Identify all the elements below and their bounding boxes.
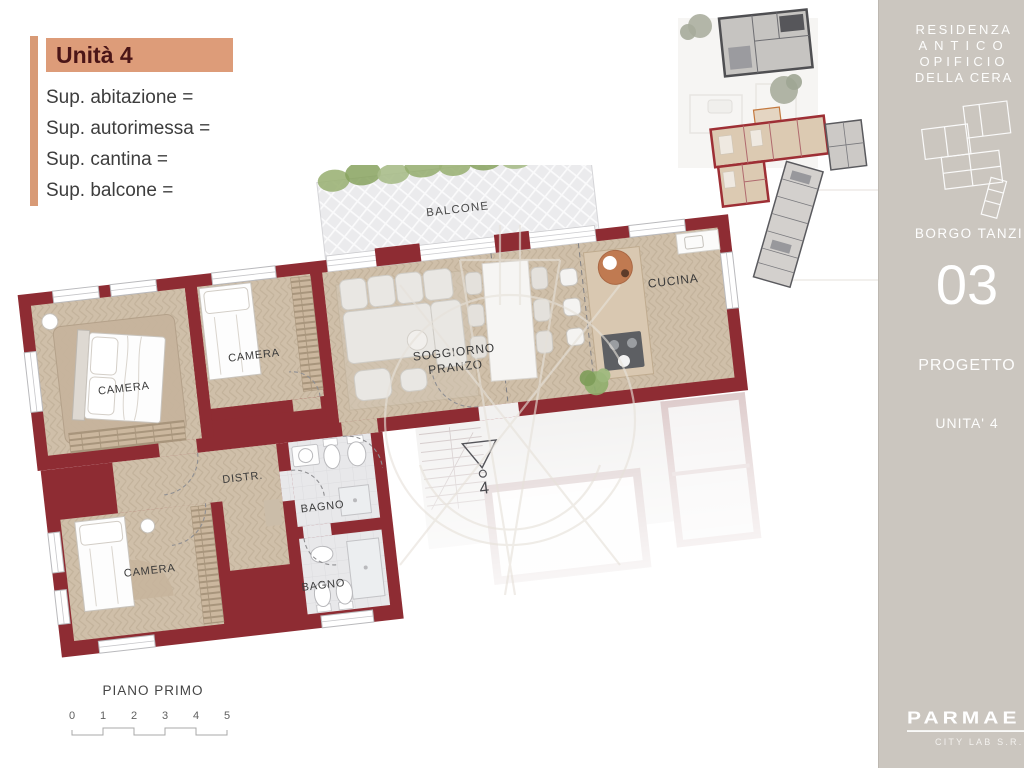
building-outline-sketch	[913, 94, 1024, 222]
logo-subtitle: CITY LAB S.R.L.	[907, 737, 1024, 747]
adjacent-unit	[825, 120, 866, 170]
scale-5: 5	[224, 710, 230, 722]
sidebar: RESIDENZA ANTICO OPIFICIO DELLA CERA	[878, 0, 1024, 768]
mat	[263, 499, 282, 527]
upper-building	[719, 9, 813, 76]
sidebar-unit-label: UNITA' 4	[879, 415, 1024, 431]
double-bed	[72, 330, 165, 425]
unit-title-chip: Unità 4	[46, 38, 233, 72]
scale-numbers: 0 1 2 3 4 5	[69, 710, 230, 722]
scale-4: 4	[193, 710, 199, 722]
logo-wordmark: PARMAE	[907, 708, 1024, 732]
section-label: PROGETTO	[879, 357, 1024, 375]
scale-bar: 0 1 2 3 4 5	[60, 706, 250, 742]
sup-autorimessa: Sup. autorimessa =	[46, 113, 210, 144]
residence-line-1: RESIDENZA	[913, 22, 1015, 38]
scale-1: 1	[100, 710, 106, 722]
unit-title: Unità 4	[46, 42, 133, 69]
site-overview-map	[660, 0, 878, 300]
sup-abitazione: Sup. abitazione =	[46, 82, 210, 113]
company-logo: PARMAE CITY LAB S.R.L.	[907, 706, 1024, 747]
residence-name: RESIDENZA ANTICO OPIFICIO DELLA CERA	[879, 22, 1024, 86]
scale-2: 2	[131, 710, 137, 722]
location-name: BORGO TANZI	[879, 226, 1024, 241]
car	[708, 100, 732, 113]
scale-3: 3	[162, 710, 168, 722]
scale-steps	[72, 728, 227, 735]
scale-0: 0	[69, 710, 75, 722]
page-number: 03	[879, 255, 1024, 315]
residence-line-3: OPIFICIO	[913, 54, 1015, 70]
slide: Unità 4 Sup. abitazione = Sup. autorimes…	[0, 0, 1024, 768]
floor-plan: BALCONE	[0, 165, 770, 725]
residence-line-4: DELLA CERA	[913, 70, 1015, 86]
floor-name: PIANO PRIMO	[88, 683, 218, 698]
residence-line-2: ANTICO	[913, 38, 1015, 54]
